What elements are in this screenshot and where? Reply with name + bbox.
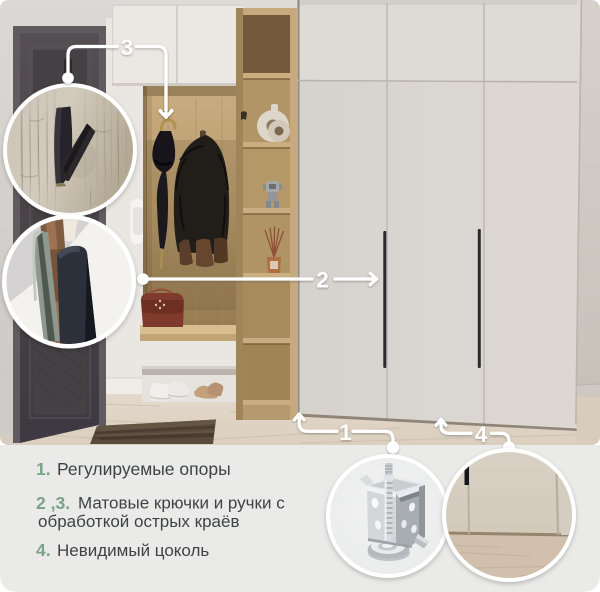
svg-text:4.: 4. — [36, 540, 51, 560]
svg-text:4: 4 — [475, 422, 488, 447]
svg-text:Невидимый цоколь: Невидимый цоколь — [57, 541, 209, 560]
svg-text:обработкой острых краёв: обработкой острых краёв — [38, 512, 239, 531]
svg-text:Регулируемые опоры: Регулируемые опоры — [57, 459, 231, 479]
svg-text:1: 1 — [339, 420, 352, 445]
svg-text:Матовые крючки и ручки с: Матовые крючки и ручки с — [78, 494, 285, 513]
svg-text:2 ,3.: 2 ,3. — [36, 493, 70, 513]
svg-text:1.: 1. — [36, 459, 51, 479]
svg-text:2: 2 — [316, 268, 329, 293]
svg-text:3: 3 — [121, 35, 134, 60]
